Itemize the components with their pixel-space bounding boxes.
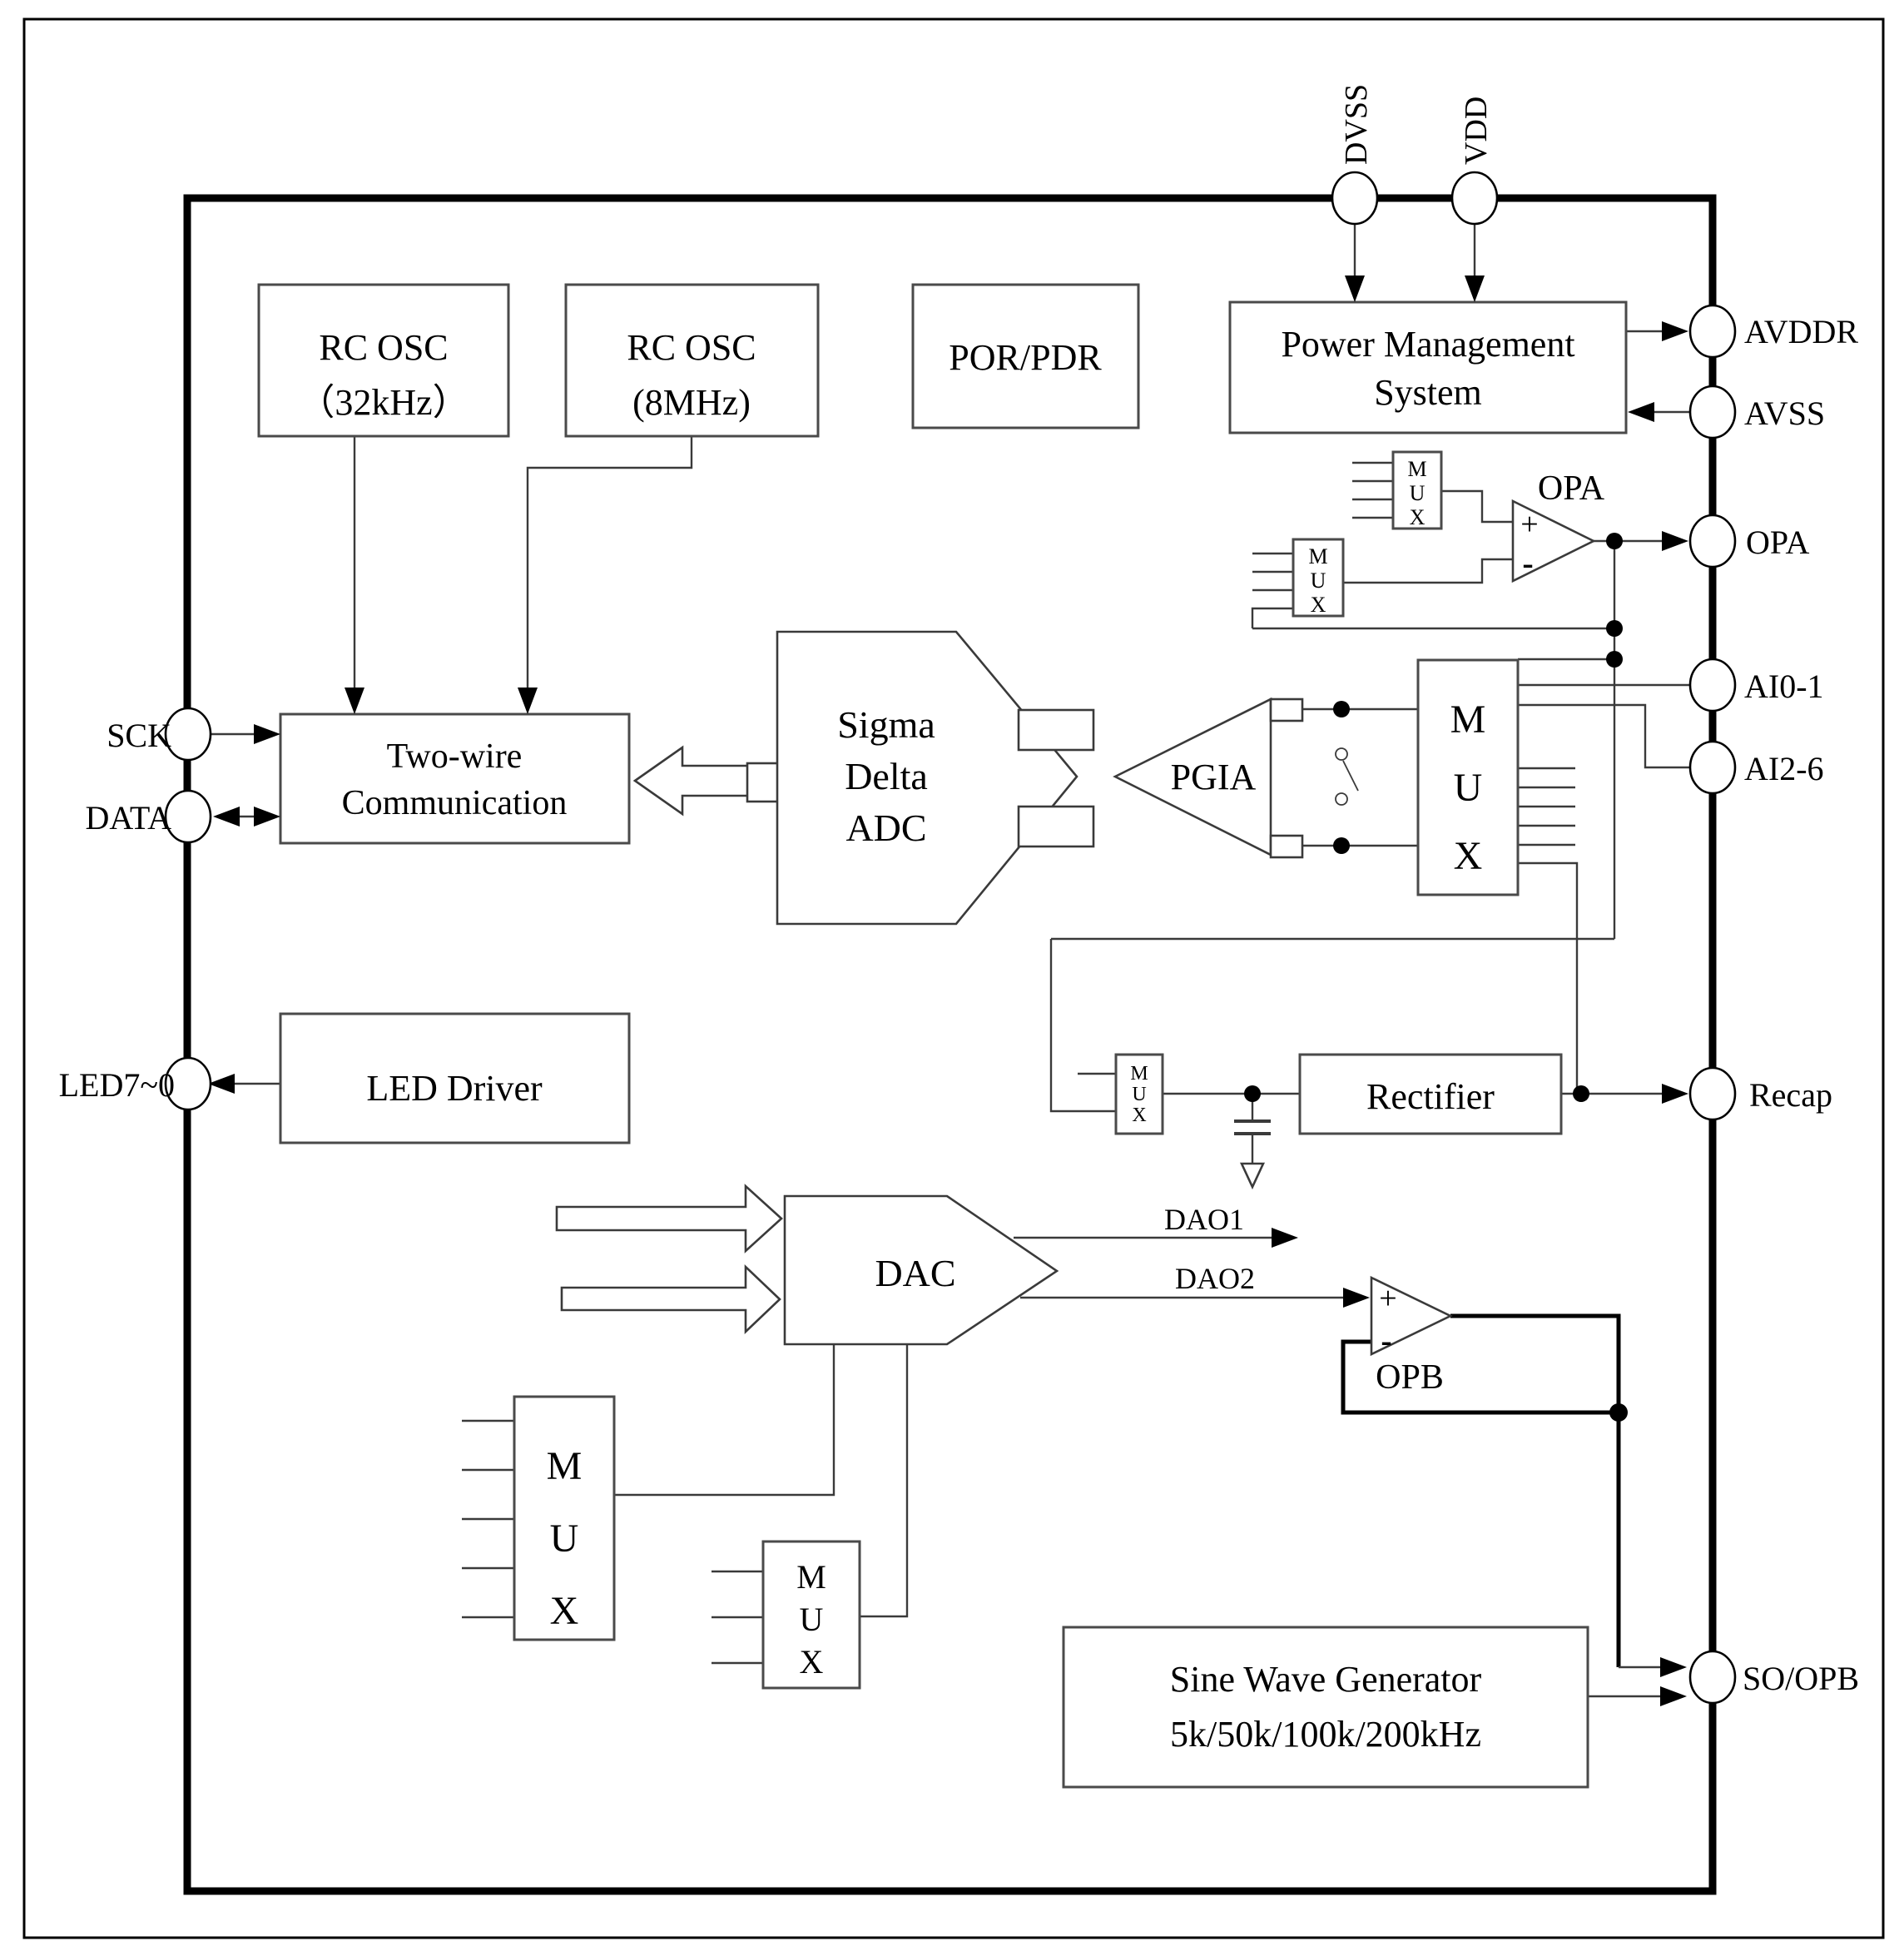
opb-out-arrow (1660, 1657, 1687, 1677)
two-wire-line2: Communication (342, 784, 568, 822)
sck-arrow (254, 724, 280, 744)
led-driver-label: LED Driver (366, 1068, 543, 1109)
recap-label: Recap (1749, 1076, 1832, 1114)
por-pdr-label: POR/PDR (949, 337, 1102, 378)
dao2-arrow (1343, 1288, 1370, 1308)
pgia-out-stub-bottom (1271, 836, 1302, 857)
led7-0-label: LED7~0 (59, 1066, 175, 1104)
pin-opa (1690, 515, 1735, 567)
two-wire-line1: Two-wire (387, 737, 523, 776)
pin-sck (166, 708, 211, 760)
pin-avss (1690, 386, 1735, 438)
data-arrow-left (213, 807, 240, 827)
switch-contact-bottom (1336, 793, 1347, 805)
pin-data (166, 791, 211, 842)
rectifier-label: Rectifier (1366, 1076, 1495, 1117)
opa-mux-a-x: X (1410, 505, 1426, 529)
pin-ai2-6 (1690, 742, 1735, 793)
ground-symbol (1242, 1164, 1263, 1187)
vdd-arrow (1465, 276, 1485, 302)
power-mgmt-line1: Power Management (1281, 324, 1574, 365)
dao1-arrow (1272, 1228, 1298, 1248)
rc-osc-32k-line1: RC OSC (319, 327, 448, 368)
opa-pin-arrow (1662, 531, 1688, 551)
switch-contact-top (1336, 748, 1347, 760)
rc-osc-32k-line2: （32kHz） (298, 382, 469, 423)
power-mgmt-line2: System (1374, 372, 1482, 413)
vdd-label: VDD (1459, 97, 1494, 165)
rect-mux-m: M (1130, 1063, 1148, 1085)
opb-amp-label: OPB (1376, 1358, 1444, 1397)
dac-mux-a-m: M (547, 1444, 583, 1488)
dac-mux-a-u: U (550, 1517, 579, 1561)
pin-dvss (1332, 172, 1377, 224)
dac-input-bus-arrow-1 (557, 1186, 781, 1251)
recap-arrow (1662, 1084, 1688, 1104)
opa-mux-a-m: M (1407, 457, 1426, 481)
led-arrow (208, 1074, 235, 1094)
rc-osc-8m-line1: RC OSC (627, 327, 756, 368)
pin-vdd (1452, 172, 1497, 224)
ai-mux-x: X (1454, 834, 1483, 878)
opb-plus: + (1379, 1281, 1396, 1316)
so-opb-label: SO/OPB (1743, 1660, 1859, 1697)
sine-gen-line2: 5k/50k/100k/200kHz (1170, 1714, 1481, 1755)
rc32-arrow (345, 688, 364, 714)
adc-pgia-link-bottom (1019, 807, 1093, 846)
pgia-out-stub-top (1271, 699, 1302, 721)
adc-pgia-link-top (1019, 710, 1093, 750)
sine-wave-generator-block (1064, 1627, 1588, 1787)
avddr-arrow (1662, 321, 1688, 341)
opa-mux-b-x: X (1311, 593, 1326, 617)
opa-plus: + (1520, 507, 1538, 542)
rc-osc-8m-line2: (8MHz) (632, 382, 751, 423)
adc-to-comm-bus-arrow (635, 747, 749, 814)
data-arrow-right (254, 807, 280, 827)
chip-block-diagram: DVSS VDD AVDDR AVSS OPA AI0-1 AI2-6 Reca… (0, 0, 1904, 1956)
data-label: DATA (86, 799, 172, 837)
dac-mux-a-x: X (550, 1589, 579, 1633)
opa-mux-b-u: U (1311, 568, 1326, 593)
sine-gen-line1: Sine Wave Generator (1170, 1659, 1482, 1700)
avddr-label: AVDDR (1744, 313, 1858, 350)
pgia-label: PGIA (1171, 757, 1257, 797)
ai-mux-m: M (1450, 698, 1486, 742)
dac-label: DAC (875, 1252, 955, 1294)
adc-left-stub (747, 763, 781, 802)
diagram-canvas: DVSS VDD AVDDR AVSS OPA AI0-1 AI2-6 Reca… (0, 0, 1904, 1956)
dac-mux-b-x: X (800, 1643, 824, 1680)
dac-mux-b-m: M (796, 1558, 826, 1596)
power-management-block (1230, 302, 1626, 433)
opb-minus: - (1381, 1322, 1391, 1359)
dao1-label: DAO1 (1164, 1203, 1244, 1236)
dvss-label: DVSS (1339, 84, 1374, 165)
opa-mux-b-m: M (1308, 544, 1327, 568)
opa-minus: - (1522, 544, 1533, 582)
dac-mux-b-u: U (800, 1601, 824, 1638)
pin-avddr (1690, 305, 1735, 357)
rect-mux-u: U (1132, 1084, 1146, 1105)
dac-input-bus-arrow-2 (562, 1267, 780, 1332)
ai2-6-label: AI2-6 (1744, 750, 1824, 787)
dvss-arrow (1345, 276, 1365, 302)
pin-recap (1690, 1068, 1735, 1119)
wires (210, 223, 1691, 1696)
sine-out-arrow (1660, 1686, 1687, 1706)
pin-so-opb (1690, 1651, 1735, 1703)
avss-label: AVSS (1744, 395, 1825, 432)
opa-pin-label: OPA (1746, 524, 1809, 561)
rc8-arrow (518, 688, 538, 714)
opa-amp-label: OPA (1538, 469, 1605, 508)
rect-mux-x: X (1132, 1105, 1146, 1126)
adc-line2: Delta (845, 755, 928, 797)
ai0-1-label: AI0-1 (1744, 668, 1824, 705)
pin-ai0-1 (1690, 659, 1735, 711)
opa-mux-a-u: U (1410, 481, 1426, 505)
sck-label: SCK (107, 717, 171, 754)
ai-mux-u: U (1454, 766, 1483, 810)
avss-arrow (1628, 402, 1654, 422)
adc-line3: ADC (845, 807, 926, 849)
dao2-label: DAO2 (1175, 1262, 1255, 1295)
adc-line1: Sigma (837, 703, 935, 746)
two-wire-communication-block (280, 714, 629, 843)
